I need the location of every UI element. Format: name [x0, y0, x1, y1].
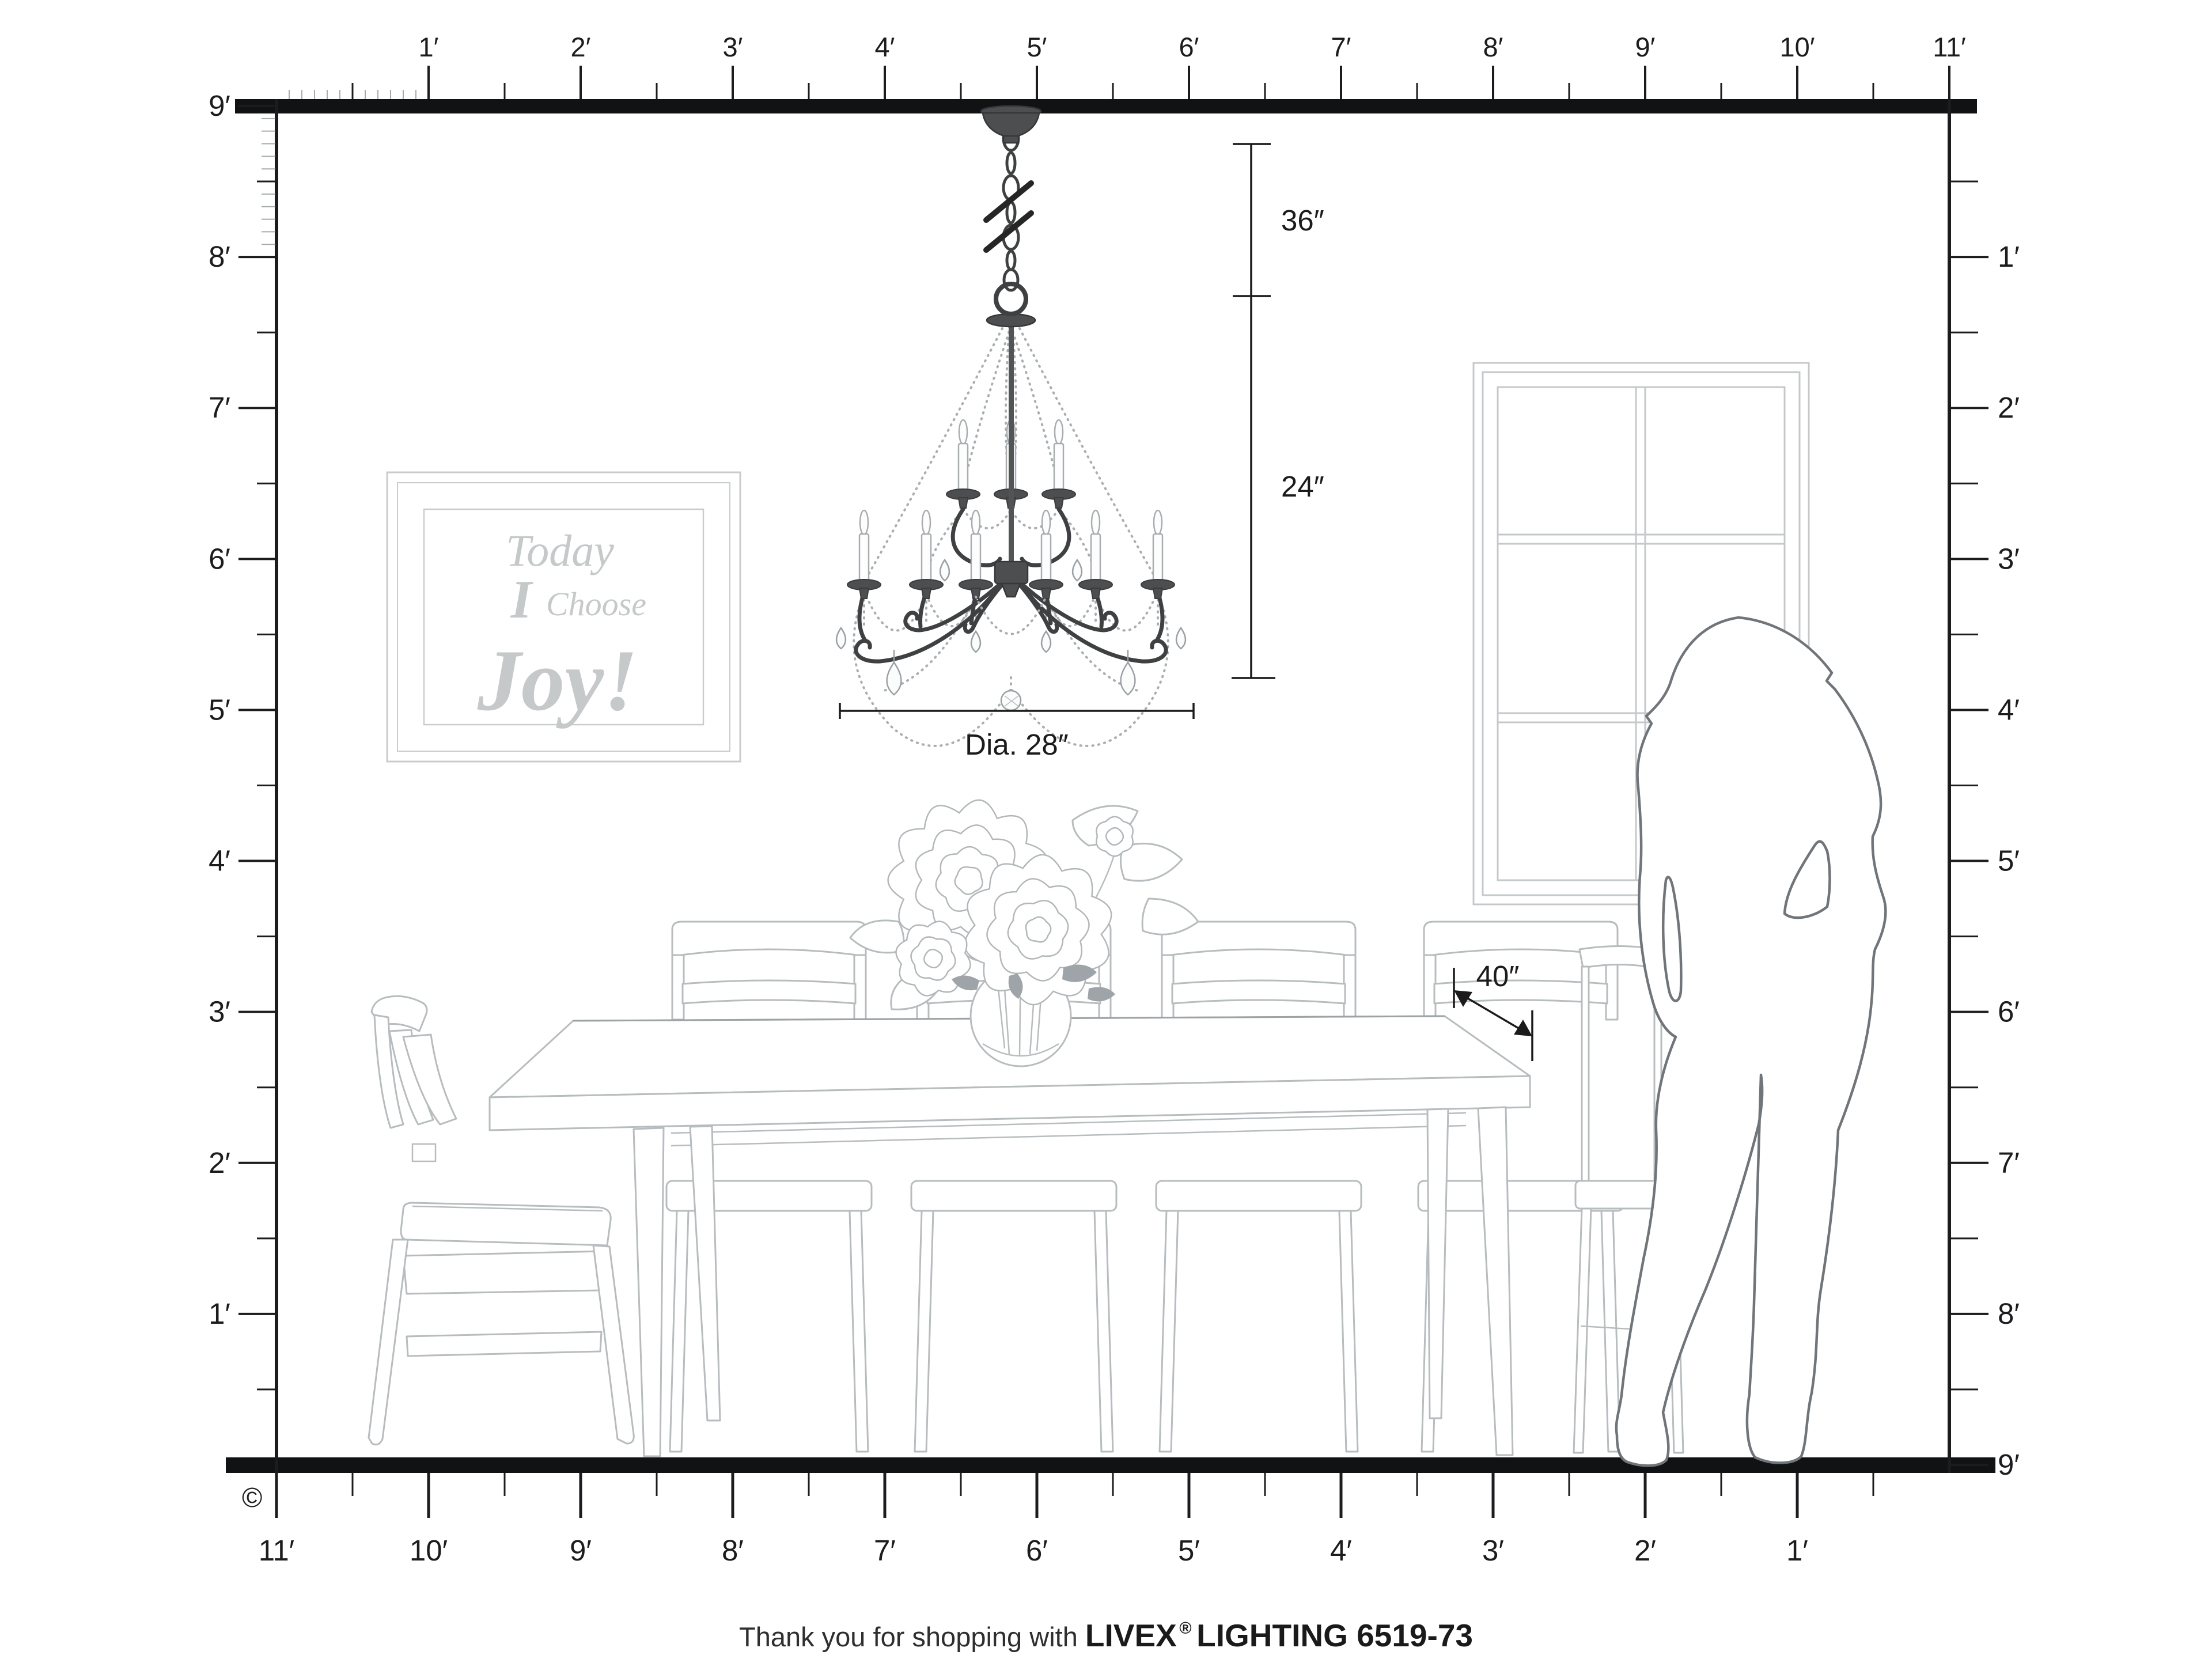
svg-text:9′: 9′ — [1635, 32, 1656, 62]
svg-text:8′: 8′ — [1483, 32, 1503, 62]
top-ruler-labels: 1′2′3′4′5′6′7′8′9′10′11′ — [419, 32, 1966, 62]
svg-text:3′: 3′ — [723, 32, 743, 62]
svg-text:11′: 11′ — [1933, 32, 1966, 62]
svg-text:3′: 3′ — [1482, 1534, 1504, 1567]
chandelier — [836, 106, 1185, 746]
wall-art-line2a: I — [510, 570, 534, 630]
svg-text:6′: 6′ — [1998, 995, 2020, 1028]
peony-flowers — [888, 800, 1133, 1005]
chandelier-ring — [996, 284, 1026, 314]
svg-text:5′: 5′ — [1178, 1534, 1200, 1567]
svg-text:1′: 1′ — [419, 32, 439, 62]
table-leg-rear-left — [690, 1126, 720, 1421]
ceiling-bar — [235, 99, 1977, 113]
chandelier-center — [976, 106, 1046, 710]
svg-text:4′: 4′ — [1998, 693, 2020, 726]
svg-text:11′: 11′ — [259, 1534, 295, 1567]
svg-text:7′: 7′ — [209, 391, 230, 424]
svg-text:1′: 1′ — [1998, 240, 2020, 273]
svg-text:2′: 2′ — [571, 32, 591, 62]
svg-text:6′: 6′ — [209, 542, 230, 575]
copyright-mark: © — [242, 1483, 262, 1513]
svg-text:8′: 8′ — [209, 240, 230, 273]
left-chair-rear-leg — [369, 1240, 408, 1445]
chandelier-drum — [995, 562, 1028, 584]
wall-art: Today I Choose Joy! — [387, 472, 740, 762]
svg-text:4′: 4′ — [1330, 1534, 1352, 1567]
svg-text:10′: 10′ — [410, 1534, 448, 1567]
dining-chair-back-3 — [1156, 922, 1361, 1452]
table-apron-line-2 — [671, 1126, 1466, 1146]
svg-text:1′: 1′ — [1786, 1534, 1808, 1567]
floor-bar — [226, 1457, 1995, 1473]
table-leg-front-right — [1478, 1107, 1513, 1455]
svg-text:10′: 10′ — [1779, 32, 1815, 62]
svg-text:1′: 1′ — [209, 1297, 230, 1330]
wall-art-line2b: Choose — [546, 585, 646, 623]
svg-text:5′: 5′ — [1998, 844, 2020, 877]
svg-text:7′: 7′ — [874, 1534, 896, 1567]
bottom-ruler-labels: 11′10′9′8′7′6′5′4′3′2′1′ — [259, 1534, 1808, 1567]
fixture-height-label: 24″ — [1281, 470, 1324, 503]
room-scale-scene: 1′2′3′4′5′6′7′8′9′10′11′ 11′10′9′8′7′6′5… — [0, 0, 2212, 1659]
chandelier-left-half — [836, 326, 1011, 746]
right-ruler-labels: 1′2′3′4′5′6′7′8′9′ — [1998, 240, 2020, 1481]
bottom-ruler-ticks — [276, 1473, 1873, 1518]
svg-text:4′: 4′ — [209, 844, 230, 877]
bottom-crystal-ball — [1001, 677, 1021, 710]
right-ruler-ticks — [1949, 181, 1988, 1465]
footer-text: Thank you for shopping with LIVEX ® LIGH… — [739, 1618, 1473, 1653]
chandelier-right-half — [1011, 326, 1185, 746]
svg-text:2′: 2′ — [1634, 1534, 1656, 1567]
chandelier-rod — [1009, 323, 1014, 582]
ceiling-canopy — [981, 106, 1041, 143]
svg-text:9′: 9′ — [570, 1534, 592, 1567]
svg-text:6′: 6′ — [1026, 1534, 1048, 1567]
svg-text:2′: 2′ — [209, 1146, 230, 1179]
wall-art-line1: Today — [506, 525, 614, 575]
svg-text:4′: 4′ — [875, 32, 895, 62]
brand-name: LIVEX — [1085, 1618, 1177, 1653]
table-clearance-label: 40″ — [1476, 960, 1520, 993]
svg-text:6′: 6′ — [1179, 32, 1199, 62]
svg-text:9′: 9′ — [1998, 1448, 2020, 1481]
footer-prefix: Thank you for shopping with — [739, 1622, 1085, 1652]
table-leg-rear-right — [1427, 1109, 1448, 1418]
left-ruler-labels: 9′8′7′6′5′4′3′2′1′ — [209, 89, 230, 1330]
product-number: LIGHTING 6519-73 — [1196, 1618, 1473, 1653]
hanging-chain — [1003, 126, 1018, 290]
svg-text:2′: 2′ — [1998, 391, 2020, 424]
svg-text:9′: 9′ — [209, 89, 230, 122]
svg-text:7′: 7′ — [1998, 1146, 2020, 1179]
diameter-dimension: Dia. 28″ — [840, 703, 1194, 761]
table-leg-front-left — [634, 1128, 664, 1456]
top-ruler-ticks — [289, 66, 1949, 99]
svg-text:5′: 5′ — [1027, 32, 1047, 62]
vertical-dimension: 36″ 24″ — [1232, 144, 1324, 678]
svg-text:8′: 8′ — [1998, 1297, 2020, 1330]
diameter-label: Dia. 28″ — [965, 728, 1069, 761]
wall-art-line3: Joy! — [477, 632, 638, 729]
hang-length-label: 36″ — [1281, 204, 1324, 237]
dining-table — [490, 1016, 1530, 1456]
registered-mark: ® — [1179, 1619, 1191, 1638]
svg-text:3′: 3′ — [1998, 542, 2020, 575]
dining-set — [369, 800, 1688, 1456]
svg-text:3′: 3′ — [209, 995, 230, 1028]
left-ruler-ticks — [238, 106, 276, 1389]
chandelier-scale-diagram: 1′2′3′4′5′6′7′8′9′10′11′ 11′10′9′8′7′6′5… — [0, 0, 2212, 1659]
svg-text:7′: 7′ — [1331, 32, 1351, 62]
svg-text:5′: 5′ — [209, 693, 230, 726]
svg-text:8′: 8′ — [722, 1534, 744, 1567]
